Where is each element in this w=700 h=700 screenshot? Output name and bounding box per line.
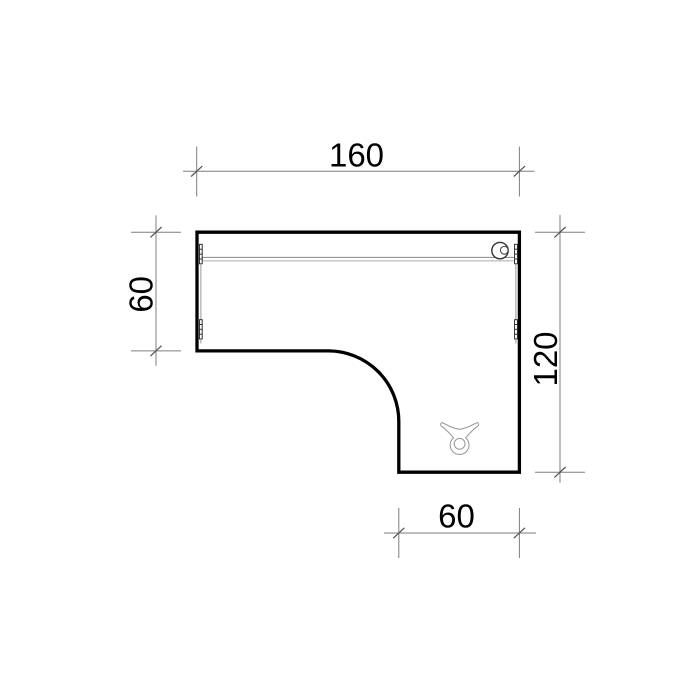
svg-text:60: 60 [438, 498, 475, 535]
svg-text:160: 160 [329, 137, 384, 174]
svg-text:60: 60 [123, 276, 160, 313]
svg-text:120: 120 [527, 331, 564, 386]
